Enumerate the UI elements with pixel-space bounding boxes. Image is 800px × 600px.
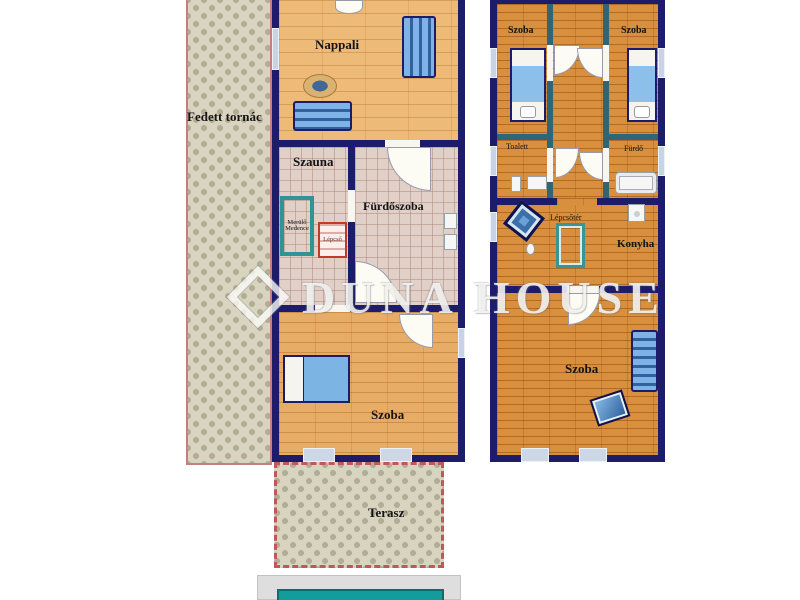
window-upper-l3 [490,212,497,242]
bath-sink [444,213,457,229]
rug [303,74,337,98]
door-gap-bottom-room [567,286,599,293]
wall-band1-left [497,134,547,140]
wall-band1-right [609,134,658,140]
bed-blanket [303,357,348,401]
door-gap-sauna [348,190,355,222]
window-upper-r2 [658,146,665,176]
bath-toilet [444,234,457,250]
bath-label: Fürdő [624,145,643,153]
stairs-box: Lépcső [318,222,347,258]
terrace-door-2 [380,448,412,462]
sofa-upper [631,330,658,392]
stairs-label: Lépcső [323,237,342,244]
door-gap-tr [603,45,609,81]
window-upper-l2 [490,146,497,176]
window-living-left [272,28,279,70]
living-label: Nappali [315,38,359,51]
window-upper-l1 [490,48,497,78]
bed-upper-right-blanket [629,66,655,102]
kitchen-sink [628,204,645,222]
door-gap-mr [603,148,609,182]
bed-upper-right-pillow [634,106,650,118]
stair-opening-gap [557,198,597,205]
door-gap-living [385,140,420,147]
kitchen-sink-drain [634,211,640,217]
terrace-area [274,462,444,568]
wall-living-bottom [279,140,458,147]
wall-sauna-bath [348,147,355,305]
floorplan-canvas: Fedett tornác Nappali Szauna Merülő Mede… [0,0,800,600]
window-upper-b2 [579,448,607,462]
door-gap-tl [547,45,553,81]
upper-floor-building: Szoba Szoba Toalett Fürdő Lépcsőtér Kony… [490,0,665,462]
ground-floor-building: Nappali Szauna Merülő Medence Lépcső Für… [272,0,465,462]
porch-area [186,0,272,465]
bed-upper-left-pillow [520,106,536,118]
toilet-wc [511,176,521,192]
plunge-pool: Merülő Medence [280,196,314,256]
upper-bedroom-left-label: Szoba [508,26,534,36]
bathroom-label: Fürdőszoba [363,200,424,212]
bedroom-label: Szoba [371,408,404,421]
wall-bedroom-top [279,305,458,312]
upper-bedroom-right-label: Szoba [621,26,647,36]
pool [277,589,444,600]
terrace-door-1 [303,448,335,462]
bed-upper-left [510,48,546,122]
porch-label: Fedett tornác [187,110,262,123]
upper-bedroom-bottom-label: Szoba [565,362,598,375]
window-upper-r1 [658,48,665,78]
stairwell-label: Lépcsőtér [550,214,582,222]
sauna-label: Szauna [293,155,333,168]
sofa [402,16,436,78]
door-arc-living-top [335,0,363,14]
window-bedroom-right [458,328,465,358]
terrace-label: Terasz [368,506,404,519]
toilet-sink [527,176,547,190]
tv-cabinet [293,101,352,131]
door-gap-bedroom [315,305,350,312]
bed-upper-left-blanket [512,66,544,102]
window-upper-b1 [521,448,549,462]
door-gap-ml [547,148,553,182]
kitchen-appliance [526,243,535,255]
kitchen-label: Konyha [617,239,654,250]
bed-ground [283,355,350,403]
bed-upper-right [627,48,657,122]
bathtub [615,172,657,194]
stair-opening [556,223,585,268]
plunge-pool-label-2: Medence [285,226,309,233]
toilet-label: Toalett [506,143,528,151]
